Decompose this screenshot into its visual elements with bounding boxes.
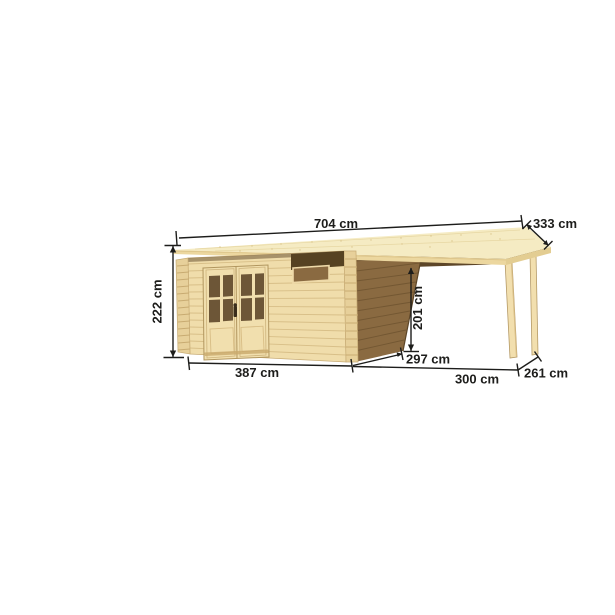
dim-clearance-height-label: 201 cm <box>410 286 425 330</box>
dim-canopy-depth-label: 261 cm <box>524 366 568 381</box>
dim-wall-height-label: 222 cm <box>150 279 165 323</box>
dim-shed-depth-label: 297 cm <box>406 352 450 367</box>
corner-logs-right <box>344 251 358 362</box>
dim-shed-width-label: 387 cm <box>235 365 279 380</box>
transom-window-open-pane <box>293 266 329 283</box>
door-handle <box>234 306 238 317</box>
dim-canopy-width-label: 300 cm <box>455 372 499 387</box>
door-handle-knob <box>233 303 237 307</box>
double-door <box>203 265 269 360</box>
dim-roof-width-label: 704 cm <box>314 216 358 231</box>
dim-roof-depth-label: 333 cm <box>533 216 577 231</box>
product-illustration: 704 cm 333 cm 222 cm 201 cm 387 cm 297 c… <box>0 0 615 615</box>
